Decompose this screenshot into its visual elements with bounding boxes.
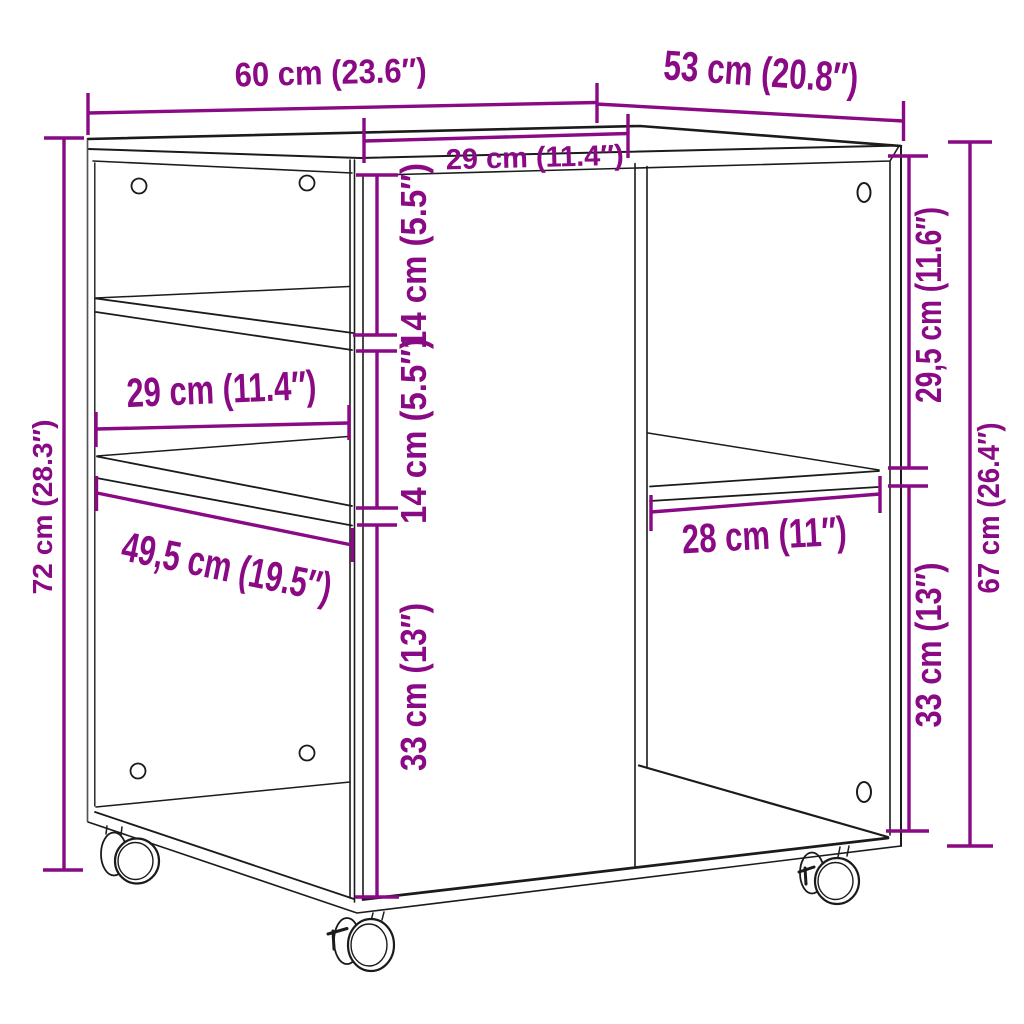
svg-text:72 cm (28.3″): 72 cm (28.3″) — [27, 420, 58, 595]
svg-text:28 cm (11″): 28 cm (11″) — [681, 508, 848, 563]
svg-text:33 cm (13″): 33 cm (13″) — [908, 563, 949, 728]
svg-text:14 cm (5.5″): 14 cm (5.5″) — [393, 163, 434, 349]
svg-text:67 cm (26.4″): 67 cm (26.4″) — [971, 423, 1006, 594]
svg-text:33 cm (13″): 33 cm (13″) — [393, 603, 434, 771]
svg-text:14 cm (5.5″): 14 cm (5.5″) — [393, 338, 434, 524]
svg-text:29 cm (11.4″): 29 cm (11.4″) — [445, 140, 624, 177]
svg-text:29,5 cm (11.6″): 29,5 cm (11.6″) — [908, 207, 949, 403]
svg-text:60 cm (23.6″): 60 cm (23.6″) — [234, 51, 427, 94]
svg-text:29 cm (11.4″): 29 cm (11.4″) — [125, 362, 317, 416]
